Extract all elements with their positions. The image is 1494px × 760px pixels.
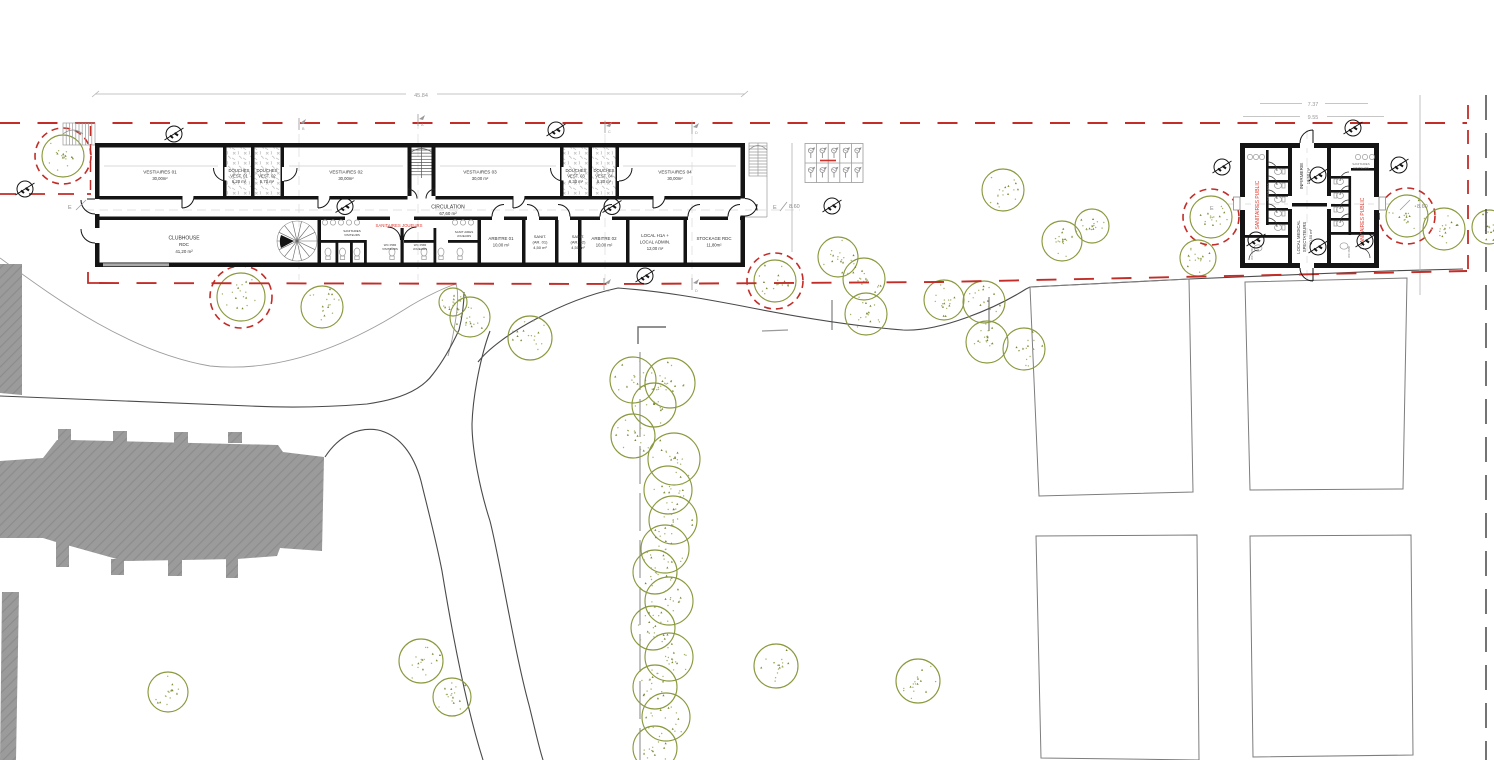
svg-text:STOCKAGE RDC: STOCKAGE RDC [696,236,731,241]
svg-text:5,70 m²: 5,70 m² [260,179,275,184]
svg-text:VESTIAIRES 03: VESTIAIRES 03 [463,170,497,175]
svg-text:WC PMR: WC PMR [1250,248,1254,260]
svg-text:WC PMR: WC PMR [1347,246,1351,258]
svg-text:DOUCHES: DOUCHES [594,168,615,173]
svg-text:VISITEURS: VISITEURS [1353,166,1369,170]
svg-text:12,00 m²: 12,00 m² [647,246,664,251]
svg-text:9.55: 9.55 [1308,115,1319,121]
svg-text:30,00 m²: 30,00 m² [472,176,489,181]
svg-text:VEST. 04: VEST. 04 [595,174,613,179]
svg-text:8.60: 8.60 [1417,204,1428,210]
svg-text:D: D [695,131,698,135]
svg-text:ARBITRE 02: ARBITRE 02 [591,236,617,241]
svg-text:SANITAIRES PUBLIC: SANITAIRES PUBLIC [1255,180,1261,229]
svg-text:VESTIAIRES 01: VESTIAIRES 01 [143,170,177,175]
svg-text:VEST. 03: VEST. 03 [567,174,585,179]
svg-text:10,50 m²: 10,50 m² [1308,228,1313,244]
svg-text:E: E [773,205,777,211]
svg-text:6,30 m²: 6,30 m² [569,179,584,184]
svg-text:4,50 m²: 4,50 m² [571,245,585,250]
svg-text:(AR. 02): (AR. 02) [571,240,587,245]
svg-text:SANIT.: SANIT. [534,234,546,239]
svg-text:INFIRMERIE: INFIRMERIE [1299,163,1304,190]
svg-text:VISITEURS: VISITEURS [344,233,360,237]
svg-text:CLUBHOUSE: CLUBHOUSE [168,236,200,242]
svg-text:11,80m²: 11,80m² [706,243,722,248]
svg-text:E: E [1210,206,1214,212]
svg-text:SANITAIRES: SANITAIRES [1266,183,1270,201]
svg-text:45.84: 45.84 [414,93,428,99]
svg-text:4,50 m²: 4,50 m² [533,245,547,250]
svg-text:VISITEURS: VISITEURS [382,247,398,251]
svg-text:6,30 m²: 6,30 m² [597,179,612,184]
svg-text:C: C [608,130,611,134]
svg-text:VEST. 02: VEST. 02 [258,174,276,179]
svg-text:LOCAL H1A +: LOCAL H1A + [641,233,669,238]
svg-text:RDC: RDC [179,242,190,247]
svg-text:LOCAL ADMIN.: LOCAL ADMIN. [640,240,671,245]
svg-text:7.37: 7.37 [1308,102,1319,108]
svg-text:30,00m²: 30,00m² [667,176,683,181]
svg-text:LOCAL MEDICAL: LOCAL MEDICAL [1296,220,1301,254]
svg-text:VEST. 01: VEST. 01 [230,174,248,179]
svg-text:67,60 m²: 67,60 m² [439,211,457,216]
svg-text:DOUCHES: DOUCHES [229,168,250,173]
svg-text:D: D [695,289,698,293]
svg-text:JOUEURS: JOUEURS [413,247,427,251]
svg-text:10,00 m²: 10,00 m² [596,243,613,248]
svg-text:SPECTATEURS: SPECTATEURS [1302,222,1307,253]
svg-text:ARBITRE 01: ARBITRE 01 [488,236,514,241]
svg-text:E: E [68,205,72,211]
svg-text:(AR. 01): (AR. 01) [533,240,549,245]
svg-text:30,00m²: 30,00m² [338,176,354,181]
svg-text:VESTIAIRES 02: VESTIAIRES 02 [329,170,363,175]
svg-text:SANITAIRES PUBLIC: SANITAIRES PUBLIC [1360,197,1366,246]
svg-text:8.60: 8.60 [789,204,800,210]
svg-text:SANIT.: SANIT. [572,234,584,239]
svg-text:C: C [607,289,610,293]
svg-text:SANITAIRES JOUEURS: SANITAIRES JOUEURS [376,223,423,228]
svg-text:10,00 m²: 10,00 m² [493,243,510,248]
svg-text:30,00m²: 30,00m² [152,176,168,181]
svg-text:DOUCHES: DOUCHES [257,168,278,173]
svg-text:DOUCHES: DOUCHES [566,168,587,173]
svg-text:JOUEURS: JOUEURS [457,234,471,238]
svg-text:6,20 m²: 6,20 m² [232,179,247,184]
svg-text:VESTIAIRES 04: VESTIAIRES 04 [658,170,692,175]
svg-text:CIRCULATION: CIRCULATION [431,205,465,211]
svg-text:41,20 m²: 41,20 m² [175,249,193,254]
